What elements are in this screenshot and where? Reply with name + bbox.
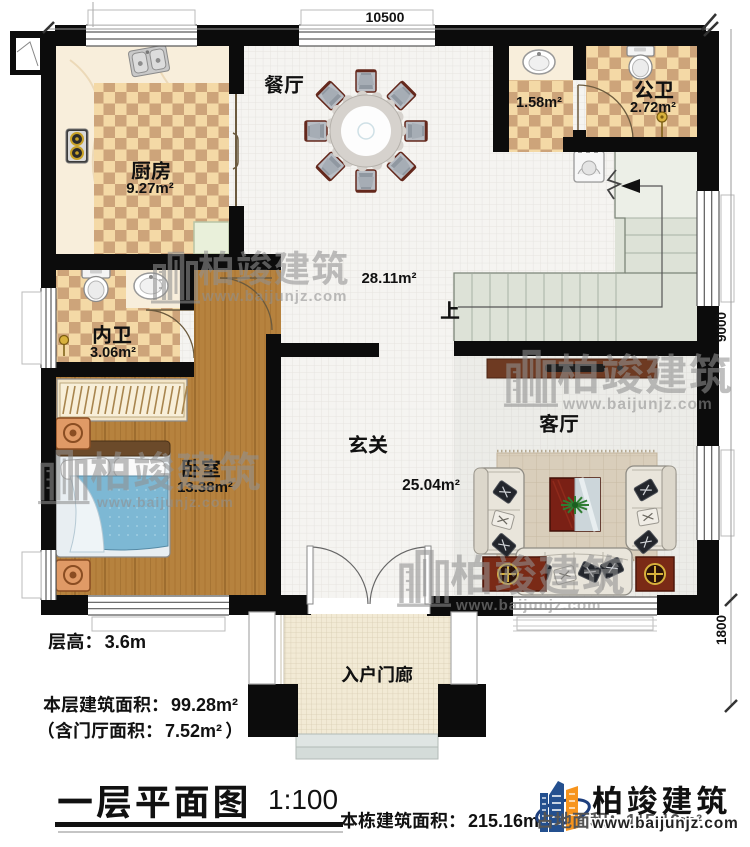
svg-text:25.04m²: 25.04m² xyxy=(402,477,460,494)
svg-text:www.baijunjz.com: www.baijunjz.com xyxy=(562,396,713,413)
svg-text:7.52m²: 7.52m² xyxy=(165,721,222,741)
svg-text:3.06m²: 3.06m² xyxy=(90,345,136,361)
svg-text:28.11m²: 28.11m² xyxy=(361,270,416,287)
svg-text:9000: 9000 xyxy=(714,312,729,342)
svg-text:1:100: 1:100 xyxy=(268,784,338,815)
svg-text:www.baijunjz.com: www.baijunjz.com xyxy=(201,288,347,305)
svg-text:www.baijunjz.com: www.baijunjz.com xyxy=(455,597,601,614)
svg-text:2.72m²: 2.72m² xyxy=(630,100,676,116)
svg-text:1800: 1800 xyxy=(714,615,729,645)
svg-text:3.6m: 3.6m xyxy=(105,632,146,652)
svg-text:99.28m²: 99.28m² xyxy=(171,695,238,715)
svg-text:9.27m²: 9.27m² xyxy=(126,180,174,197)
svg-text:1.58m²: 1.58m² xyxy=(516,95,562,111)
svg-text:10500: 10500 xyxy=(366,9,405,25)
svg-text:215.16m²: 215.16m² xyxy=(468,811,545,831)
svg-text:www.baijunjz.com: www.baijunjz.com xyxy=(591,815,739,832)
svg-text:www.baijunjz.com: www.baijunjz.com xyxy=(96,494,234,510)
